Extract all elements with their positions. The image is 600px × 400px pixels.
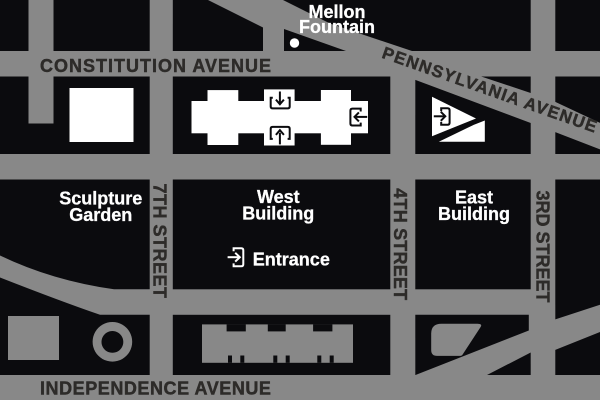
svg-text:Building: Building bbox=[242, 204, 314, 224]
svg-text:Entrance: Entrance bbox=[253, 249, 330, 269]
svg-text:3RD STREET: 3RD STREET bbox=[533, 191, 553, 303]
svg-text:7TH STREET: 7TH STREET bbox=[150, 184, 170, 299]
svg-text:INDEPENDENCE AVENUE: INDEPENDENCE AVENUE bbox=[40, 378, 272, 398]
svg-text:Building: Building bbox=[438, 204, 510, 224]
svg-text:CONSTITUTION AVENUE: CONSTITUTION AVENUE bbox=[40, 56, 272, 76]
svg-text:Garden: Garden bbox=[69, 205, 132, 225]
svg-text:4TH STREET: 4TH STREET bbox=[390, 188, 410, 300]
svg-text:Fountain: Fountain bbox=[299, 17, 375, 37]
